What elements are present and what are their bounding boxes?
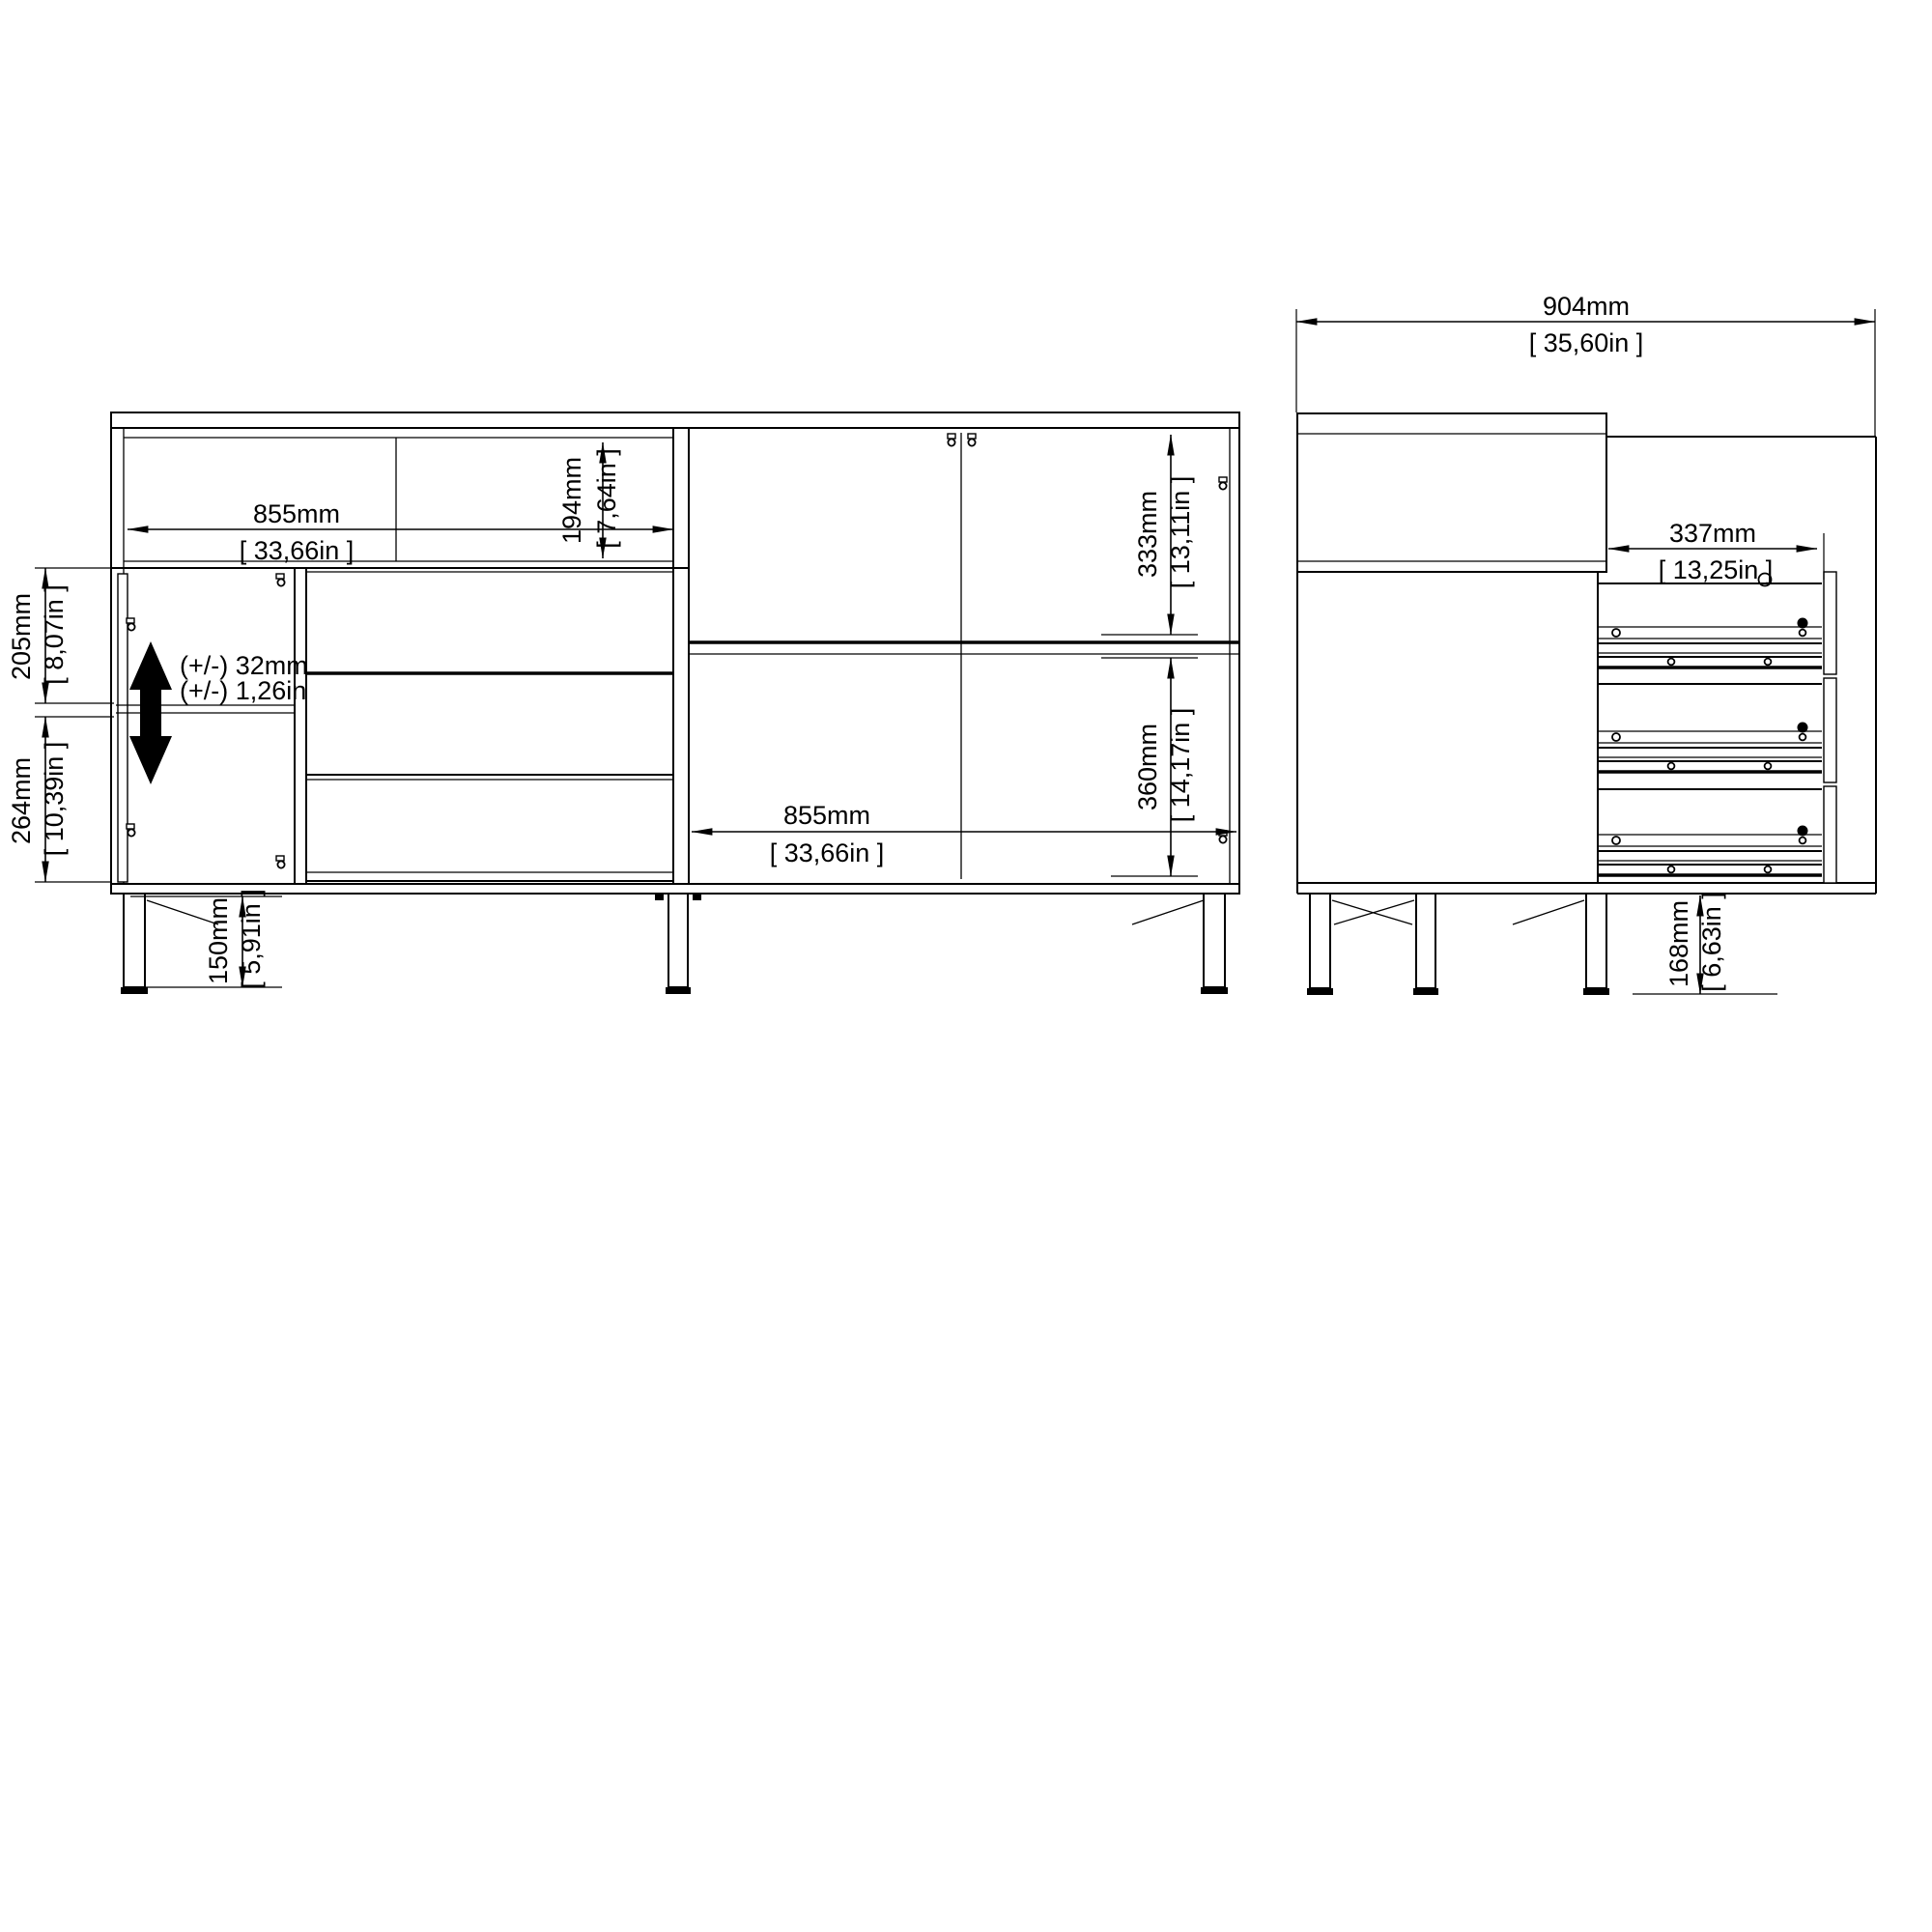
dim-label: (+/-) 1,26in	[180, 676, 306, 705]
dim-label: 904mm	[1543, 292, 1630, 321]
dim-label: 194mm	[557, 457, 586, 544]
dim-label: [ 5,91in ]	[237, 889, 266, 989]
dim-label: [ 33,66in ]	[240, 536, 355, 565]
label-shelf-adjustment: (+/-) 32mm (+/-) 1,26in	[180, 651, 308, 705]
hinge-icon	[1219, 477, 1227, 490]
dim-label: [ 13,25in ]	[1659, 555, 1774, 584]
drawer-front-edge	[1824, 786, 1836, 883]
dim-label: [ 14,17in ]	[1166, 708, 1195, 823]
dim-label: 333mm	[1133, 491, 1162, 578]
dim-label: [ 33,66in ]	[770, 838, 885, 867]
dim-label: 150mm	[204, 897, 233, 984]
dim-label: 855mm	[253, 499, 340, 528]
dimension-drawing-svg: 855mm [ 33,66in ] 194mm [ 7,64in ] 205mm…	[0, 0, 1932, 1932]
dim-side-drawer-width: 337mm [ 13,25in ]	[1608, 519, 1824, 584]
dim-label: 168mm	[1664, 900, 1693, 987]
side-drawer-modules	[1598, 572, 1836, 883]
dim-left-upper-compartment: 205mm [ 8,07in ]	[7, 568, 114, 703]
drawer-section	[1598, 789, 1822, 875]
drawer-section	[1598, 684, 1822, 772]
hinge-icon	[948, 434, 955, 446]
drawer-section	[1598, 583, 1822, 668]
hinge-icon	[968, 434, 976, 446]
drawer-front-edge	[1824, 572, 1836, 674]
front-view: 855mm [ 33,66in ] 194mm [ 7,64in ] 205mm…	[7, 412, 1239, 994]
front-legs	[121, 894, 1228, 994]
dim-label: [ 13,11in ]	[1166, 476, 1195, 589]
dim-side-leg-height: 168mm [ 6,63in ]	[1633, 892, 1777, 994]
dim-front-leg-height: 150mm [ 5,91in ]	[130, 889, 282, 989]
dim-label: [ 10,39in ]	[40, 742, 69, 857]
dim-label: 205mm	[7, 593, 36, 680]
hinge-icon	[1219, 831, 1227, 843]
dim-label: 264mm	[7, 757, 36, 844]
drawing-page: 855mm [ 33,66in ] 194mm [ 7,64in ] 205mm…	[0, 0, 1932, 1932]
dim-label: 337mm	[1669, 519, 1756, 548]
dim-label: 360mm	[1133, 724, 1162, 810]
dim-label: 855mm	[783, 801, 870, 830]
side-view: 904mm [ 35,60in ] 337mm [ 13,25in ] 168m…	[1296, 292, 1876, 995]
dim-label: [ 6,63in ]	[1697, 892, 1726, 992]
dim-label: [ 8,07in ]	[40, 584, 69, 685]
side-legs	[1307, 894, 1609, 995]
dim-left-lower-compartment: 264mm [ 10,39in ]	[7, 717, 114, 882]
dim-label: [ 7,64in ]	[592, 448, 621, 549]
dim-label: [ 35,60in ]	[1529, 328, 1644, 357]
drawer-front-edge	[1824, 678, 1836, 782]
